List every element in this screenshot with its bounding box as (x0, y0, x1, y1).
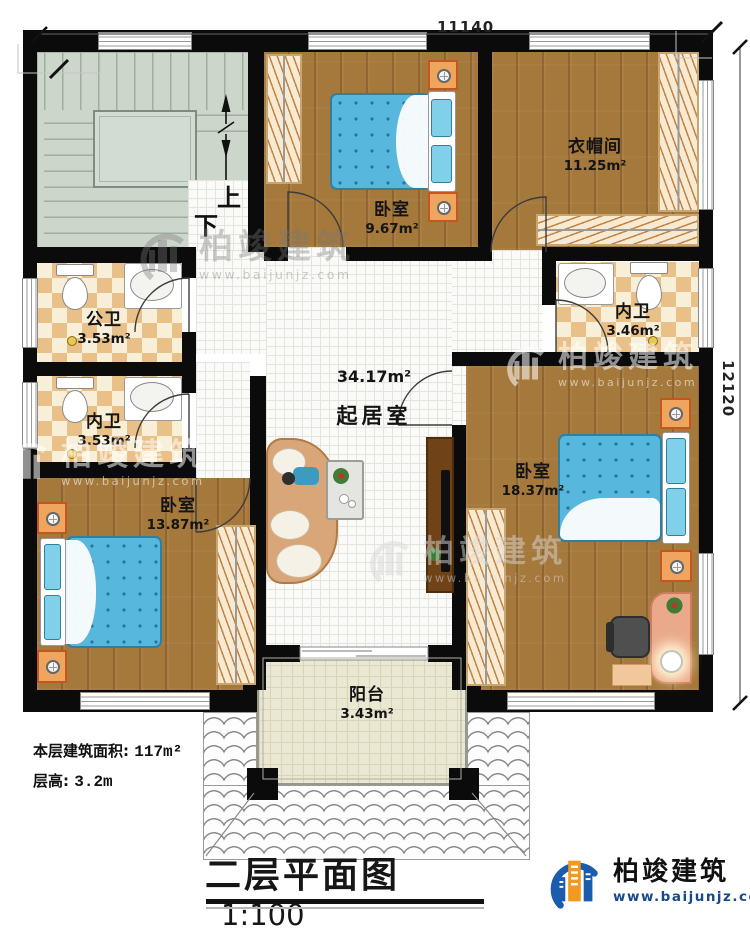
wall-baths-right-b (182, 332, 196, 393)
door-gap-floor (452, 366, 466, 425)
wardrobe-icon (216, 525, 256, 685)
toilet-bowl (62, 277, 88, 310)
stairs-down-label: 下 (194, 206, 218, 241)
building-area-line: 本层建筑面积: 117m² (33, 738, 182, 768)
nightstand-icon (37, 650, 67, 683)
wall-bedroomT-bottom-a (264, 247, 288, 261)
nightstand-icon (660, 398, 691, 429)
cup-decor (348, 500, 356, 508)
pillow-icon (44, 544, 61, 590)
dimension-top: 11140 (437, 18, 494, 36)
floor-drain-icon (67, 336, 77, 346)
plant-icon (666, 597, 683, 614)
desk-lamp-icon (660, 650, 683, 673)
floor-height-line: 层高: 3.2m (33, 768, 182, 798)
room-name: 内卫 (77, 412, 130, 433)
wall-bedroomL-top (23, 462, 196, 478)
closet-shelf-bottom (536, 214, 699, 246)
window-right-bedroom (698, 553, 714, 655)
window-right-closet (698, 80, 714, 210)
pillow-icon (666, 488, 686, 536)
wall-bedroomR-top (452, 352, 713, 366)
flower-decor-icon (333, 468, 349, 484)
room-label-ensuite-right: 内卫 3.46m² (606, 302, 659, 340)
room-label-ensuite-left: 内卫 3.53m² (77, 412, 130, 450)
toilet-icon (56, 377, 94, 389)
window-top-closet (529, 32, 650, 50)
pillow-icon (44, 595, 61, 640)
stair-treads-left (44, 110, 93, 188)
room-name: 公卫 (77, 310, 130, 331)
brand-logo-block: 柏竣建筑 www.baijunjz.com (543, 852, 750, 912)
balcony-post-left (247, 768, 278, 800)
room-label-public-bath: 公卫 3.53m² (77, 310, 130, 348)
wall-baths-right-a (182, 247, 196, 278)
wall-left (23, 30, 37, 712)
pillow-icon (431, 99, 452, 137)
room-name: 阳台 (340, 685, 393, 706)
wall-closet-bottom-a (478, 247, 492, 261)
building-area-value: 117m² (134, 743, 182, 761)
room-name: 衣帽间 (564, 137, 627, 158)
room-name: 卧室 (502, 462, 565, 483)
toilet-icon (630, 262, 668, 274)
wall-bedroomT-closet (478, 30, 492, 261)
wall-between-baths (37, 362, 182, 376)
side-table (612, 664, 652, 686)
plant-icon (428, 548, 441, 561)
room-label-balcony: 阳台 3.43m² (340, 685, 393, 723)
blanket-icon (396, 95, 428, 188)
hall-left-floor (196, 362, 250, 478)
nightstand-icon (428, 60, 458, 90)
stair-treads-top (44, 52, 248, 110)
room-area: 11.25m² (564, 158, 627, 175)
sink-basin (130, 382, 174, 412)
person-head (282, 472, 295, 485)
wall-stairs-bedroom (248, 30, 264, 252)
room-area: 3.43m² (340, 706, 393, 723)
person-icon (293, 467, 319, 485)
pillow-icon (431, 145, 452, 183)
pillow-icon (666, 438, 686, 484)
floor-height-label: 层高: (33, 772, 69, 790)
building-area-label: 本层建筑面积: (33, 742, 129, 760)
brand-logo-icon (543, 852, 605, 912)
balcony-post-right (449, 768, 479, 800)
floor-drain-icon (67, 449, 77, 459)
dimension-right: 12120 (719, 360, 737, 417)
stair-treads-right (197, 110, 248, 132)
window-right-ensuite (698, 268, 714, 348)
wall-balcony-a (252, 645, 300, 662)
floor-info: 本层建筑面积: 117m² 层高: 3.2m (33, 738, 182, 797)
room-label-bedroom-left: 卧室 13.87m² (147, 496, 210, 534)
nightstand-icon (660, 550, 692, 582)
room-name: 卧室 (365, 200, 418, 221)
toilet-icon (56, 264, 94, 276)
title-underline-thick (206, 899, 484, 904)
tv-icon (441, 470, 450, 572)
sofa-cushion (270, 510, 310, 540)
room-label-bedroom-top: 卧室 9.67m² (365, 200, 418, 238)
nightstand-icon (37, 502, 67, 534)
room-label-closet: 衣帽间 11.25m² (564, 137, 627, 175)
plan-title: 二层平面图 (205, 846, 400, 898)
nightstand-icon (428, 192, 458, 222)
closet-shelf-right (658, 52, 699, 212)
window-left-publicbath (22, 278, 38, 348)
room-area: 34.17m² (337, 367, 412, 387)
window-top-bedroom (308, 32, 427, 50)
wardrobe-icon (466, 508, 506, 686)
stair-landing (93, 110, 197, 188)
floor-height-value: 3.2m (74, 773, 112, 791)
stairs-up-label: 上 (217, 178, 241, 213)
wardrobe-icon (266, 54, 302, 184)
room-name: 卧室 (147, 496, 210, 517)
room-area: 3.53m² (77, 433, 130, 450)
sink-basin (564, 268, 606, 298)
sink-basin (130, 269, 174, 301)
brand-name: 柏竣建筑 (613, 859, 750, 885)
wall-bedroomT-bottom-b (346, 247, 480, 261)
room-area: 3.53m² (77, 331, 130, 348)
brand-website: www.baijunjz.com (613, 889, 750, 905)
plan-title-block: 二层平面图 1:100 (205, 846, 485, 932)
room-area: 3.46m² (606, 323, 659, 340)
wall-ensuiteR-left (542, 247, 556, 305)
sofa-cushion (276, 544, 322, 578)
chair-back (606, 622, 614, 652)
room-name: 内卫 (606, 302, 659, 323)
window-bottom-bedroomR (507, 692, 655, 710)
window-bottom-bedroomL (80, 692, 210, 710)
room-area: 13.87m² (147, 517, 210, 534)
stair-treads-bottom (44, 188, 197, 250)
room-area: 18.37m² (502, 483, 565, 500)
wall-closet-bottom-b (548, 247, 713, 261)
room-name: 起居室 (337, 403, 412, 429)
room-area: 9.67m² (365, 221, 418, 238)
room-label-bedroom-right: 卧室 18.37m² (502, 462, 565, 500)
title-underline-thin (206, 907, 484, 909)
wall-stairs-bath (23, 247, 196, 263)
window-top-stairs (98, 32, 192, 50)
office-chair-icon (610, 616, 650, 658)
room-label-living: 34.17m² 起居室 (337, 367, 412, 429)
window-left-ensuite (22, 382, 38, 448)
